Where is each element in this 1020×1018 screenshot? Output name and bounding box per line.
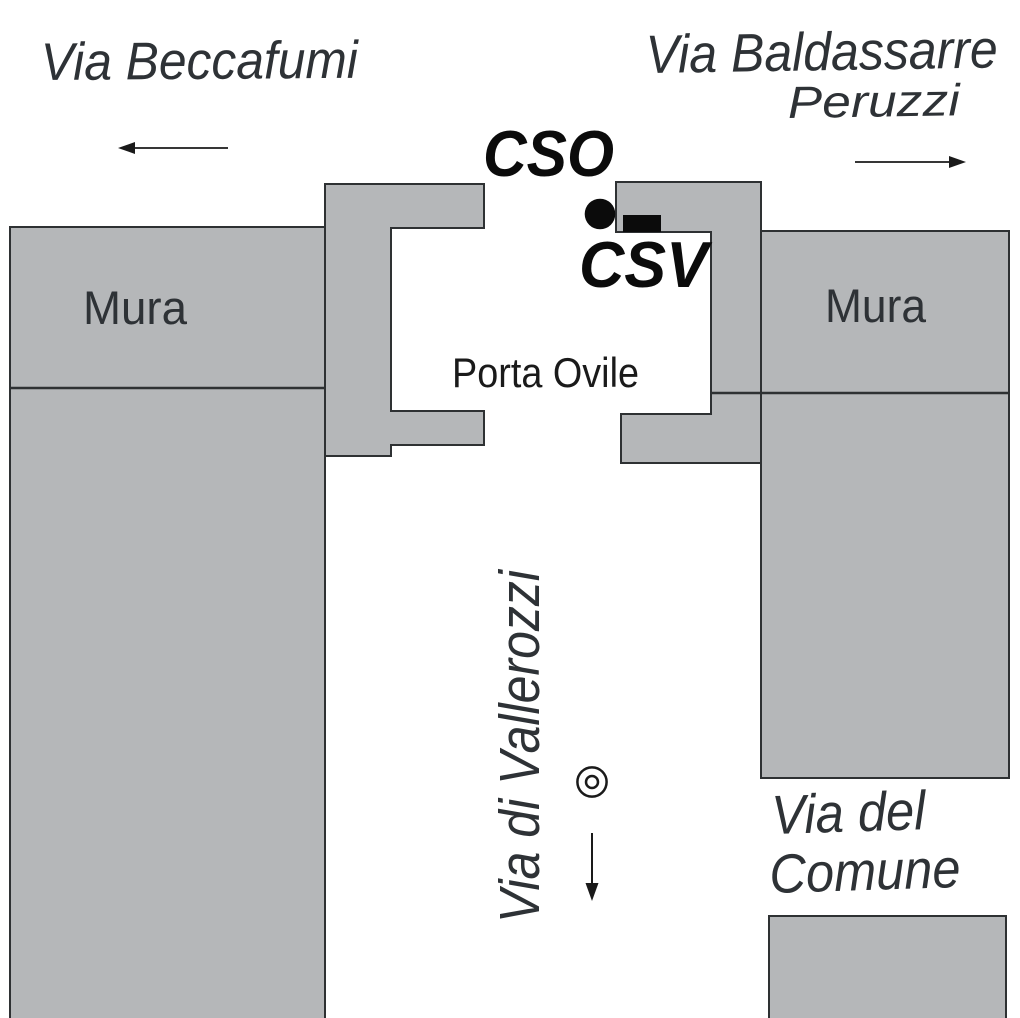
svg-text:Via del: Via del	[770, 779, 927, 846]
svg-text:Via Beccafumi: Via Beccafumi	[41, 31, 360, 92]
svg-text:Peruzzi: Peruzzi	[787, 74, 962, 128]
svg-text:Comune: Comune	[768, 837, 961, 905]
svg-text:Mura: Mura	[825, 279, 927, 332]
svg-text:Via di Vallerozzi: Via di Vallerozzi	[488, 569, 552, 923]
svg-text:Mura: Mura	[83, 281, 188, 334]
svg-text:CSV: CSV	[579, 228, 712, 301]
svg-text:Porta Ovile: Porta Ovile	[452, 349, 639, 396]
svg-text:CSO: CSO	[483, 117, 614, 190]
